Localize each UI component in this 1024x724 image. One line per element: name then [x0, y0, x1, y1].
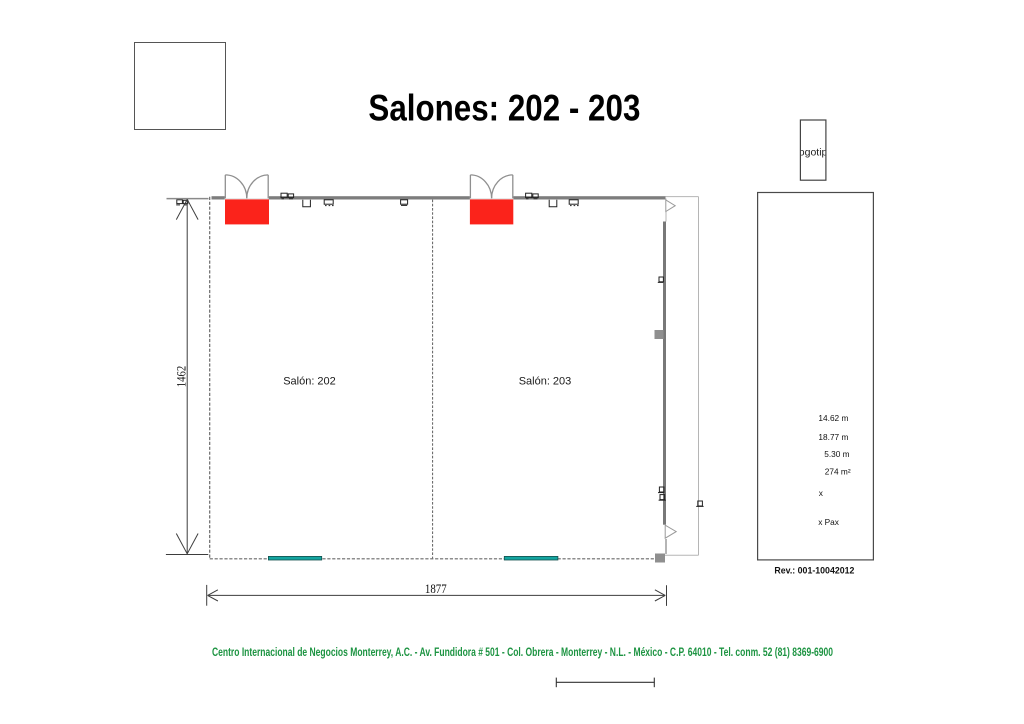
svg-text:1462: 1462: [173, 366, 188, 388]
svg-text:5.30 m: 5.30 m: [824, 449, 849, 459]
svg-text:Logotipo: Logotipo: [793, 146, 833, 158]
svg-text:18.77 m: 18.77 m: [818, 432, 848, 442]
svg-text:Salón: 202: Salón: 202: [283, 375, 336, 387]
svg-text:Rev.: 001-10042012: Rev.: 001-10042012: [774, 565, 854, 575]
svg-text:Centro Internacional de Negoci: Centro Internacional de Negocios Monterr…: [212, 645, 833, 659]
svg-text:274 m²: 274 m²: [825, 467, 851, 477]
svg-text:Salón: 203: Salón: 203: [519, 375, 572, 387]
svg-text:x: x: [819, 488, 824, 498]
svg-text:Salones: 202 - 203: Salones: 202 - 203: [368, 88, 640, 129]
svg-text:1877: 1877: [425, 581, 447, 596]
svg-text:14.62 m: 14.62 m: [818, 413, 848, 423]
svg-text:x Pax: x Pax: [818, 517, 840, 527]
